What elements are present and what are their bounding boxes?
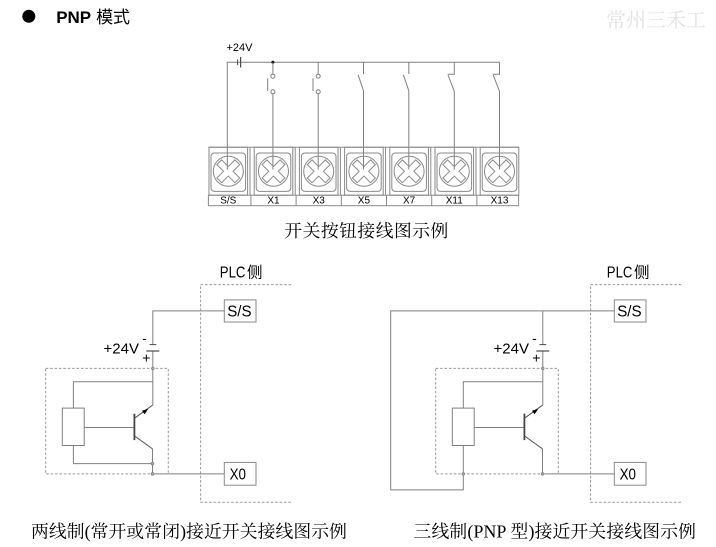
svg-text:侧: 侧: [634, 264, 650, 282]
svg-text:侧: 侧: [247, 264, 263, 282]
svg-text:+24V: +24V: [104, 341, 139, 358]
svg-text:+24V: +24V: [494, 341, 529, 358]
svg-text:S/S: S/S: [617, 304, 641, 321]
svg-text:X5: X5: [358, 195, 371, 206]
svg-text:X0: X0: [230, 467, 246, 484]
svg-text:S/S: S/S: [220, 195, 236, 206]
svg-text:-: -: [532, 330, 537, 346]
svg-text:常州三禾工: 常州三禾工: [606, 9, 706, 32]
svg-text:X11: X11: [446, 195, 463, 206]
svg-text:X7: X7: [403, 195, 416, 206]
svg-text:+: +: [142, 350, 150, 366]
svg-text:X3: X3: [313, 195, 326, 206]
svg-text:+: +: [532, 350, 540, 366]
svg-text:开关按钮接线图示例: 开关按钮接线图示例: [284, 221, 449, 241]
svg-text:X13: X13: [491, 195, 509, 206]
svg-text:X0: X0: [620, 467, 636, 484]
svg-text:PNP 模式: PNP 模式: [56, 8, 130, 27]
svg-text:-: -: [142, 330, 147, 346]
svg-text:S/S: S/S: [227, 304, 251, 321]
svg-text:PLC: PLC: [607, 265, 633, 282]
svg-text:PLC: PLC: [220, 265, 246, 282]
svg-text:+24V: +24V: [227, 42, 254, 54]
svg-text:两线制(常开或常闭)接近开关接线图示例: 两线制(常开或常闭)接近开关接线图示例: [31, 521, 347, 542]
svg-text:三线制(PNP 型)接近开关接线图示例: 三线制(PNP 型)接近开关接线图示例: [414, 521, 697, 542]
svg-text:X1: X1: [267, 195, 280, 206]
